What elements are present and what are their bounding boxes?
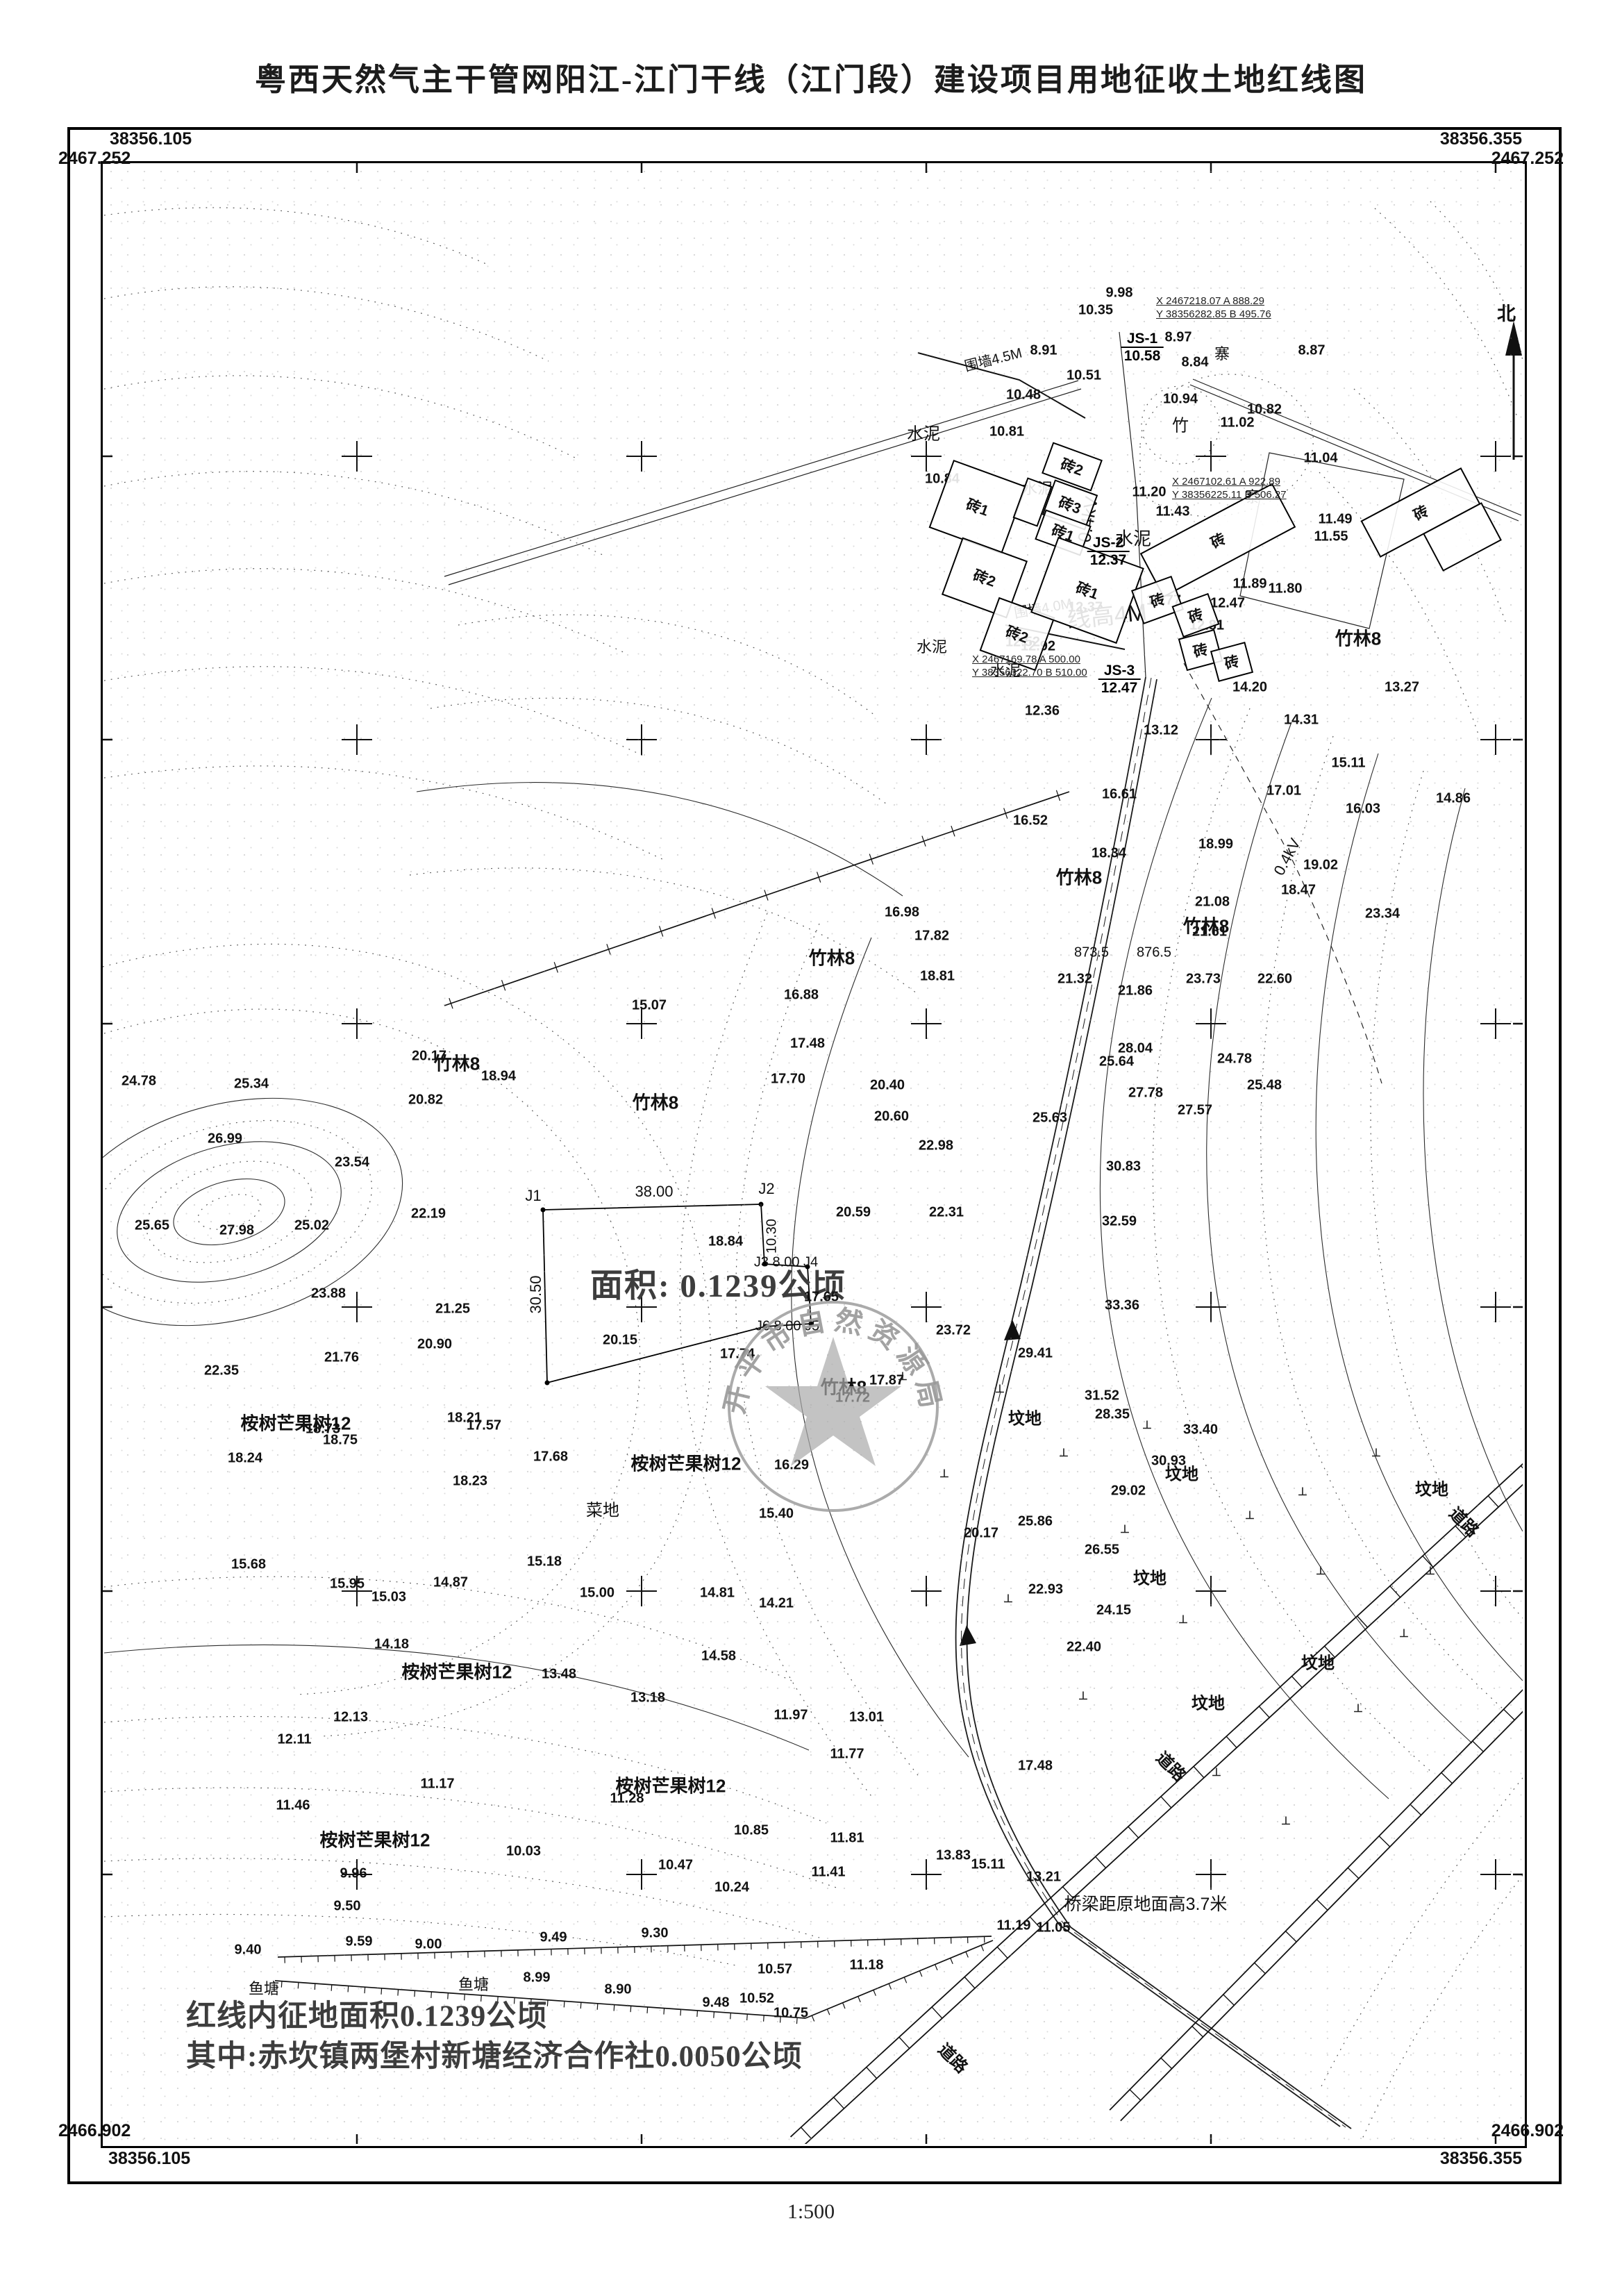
coord-bottom-right-northing: 2466.902 xyxy=(1439,2121,1564,2141)
scale-label: 1:500 xyxy=(0,2200,1622,2224)
coord-bottom-left-easting: 38356.105 xyxy=(108,2149,190,2169)
coord-bottom-left-northing: 2466.902 xyxy=(58,2121,131,2141)
coord-top-left-northing: 2467.252 xyxy=(58,149,131,169)
coord-bottom-right-easting: 38356.355 xyxy=(1397,2149,1522,2169)
seal-star xyxy=(765,1337,901,1466)
map-canvas xyxy=(103,163,1523,2144)
map-title: 粤西天然气主干管网阳江-江门干线（江门段）建设项目用地征收土地红线图 xyxy=(0,54,1622,99)
map-page: 粤西天然气主干管网阳江-江门干线（江门段）建设项目用地征收土地红线图 xyxy=(0,0,1622,2296)
contour-dot-texture xyxy=(103,163,1523,2144)
coord-top-right-northing: 2467.252 xyxy=(1439,149,1564,169)
coord-top-right-easting: 38356.355 xyxy=(1397,129,1522,149)
official-seal: 开平市自然资源局 xyxy=(719,1292,955,1528)
coord-top-left-easting: 38356.105 xyxy=(110,129,192,149)
